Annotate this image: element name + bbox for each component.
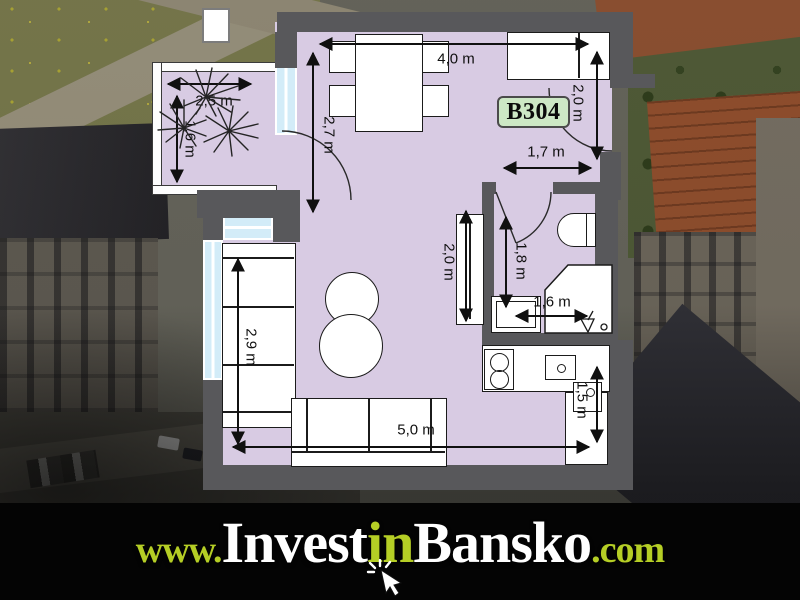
brand-suffix: .com	[591, 528, 664, 572]
cursor-click-icon	[366, 559, 406, 599]
dim-bathroom-width: 1,6 m	[533, 295, 571, 310]
dim-dining-width: 4,0 m	[437, 52, 475, 67]
hob-burner	[490, 370, 509, 389]
coffee-table	[319, 314, 383, 378]
dim-entry-side: 2,0 m	[571, 84, 586, 122]
brand-bar: www.InvestinBansko.com	[0, 503, 800, 600]
brand-bansko: Bansko	[413, 509, 591, 576]
window-living-glass	[203, 240, 223, 380]
dim-wardrobe-length: 2,0 m	[442, 243, 457, 281]
balcony-wall-left	[152, 62, 162, 195]
dim-dining-depth: 2,7 m	[322, 116, 337, 154]
sink-drain	[557, 364, 566, 373]
balcony-floor	[158, 68, 277, 188]
wall-bath-right	[595, 192, 618, 345]
dim-bathroom-length: 1,8 m	[514, 242, 529, 280]
dim-balcony-width: 2,5 m	[195, 94, 233, 109]
toilet-tank	[586, 213, 596, 247]
wall-bath-top-right	[553, 182, 610, 194]
window-balcony	[275, 66, 297, 135]
dim-balcony-depth: 1,6 m	[183, 120, 198, 158]
hob	[484, 349, 514, 390]
brand-invest: Invest	[222, 509, 367, 576]
dining-table	[355, 34, 423, 132]
dining-chair	[421, 85, 449, 117]
window-corner	[223, 215, 273, 240]
wall-entry-stub	[610, 74, 655, 88]
kitchen-sink	[545, 355, 576, 380]
balcony-wall-top	[152, 62, 277, 72]
wall-left-upper	[275, 32, 297, 68]
wall-bottom	[203, 465, 633, 490]
wall-top	[277, 12, 633, 32]
dim-kitchen-depth: 1,5 m	[575, 381, 590, 419]
entry-cabinet	[507, 32, 610, 80]
wall-under-balcony	[197, 190, 300, 218]
dim-sofa-length: 2,9 m	[244, 328, 259, 366]
dining-chair	[329, 41, 357, 73]
wall-bath-bottom	[482, 333, 610, 345]
unit-label: B304	[497, 96, 570, 128]
dining-chair	[329, 85, 357, 117]
wall-corner-block	[273, 215, 300, 242]
brand-prefix: www.	[136, 528, 222, 572]
dim-living-width: 5,0 m	[397, 423, 435, 438]
screenshot: 4,0 m 2,7 m 2,0 m 1,7 m 2,0 m 1,8 m 1,6 …	[0, 0, 800, 600]
dim-entry-width: 1,7 m	[527, 145, 565, 160]
wardrobe	[456, 214, 484, 325]
